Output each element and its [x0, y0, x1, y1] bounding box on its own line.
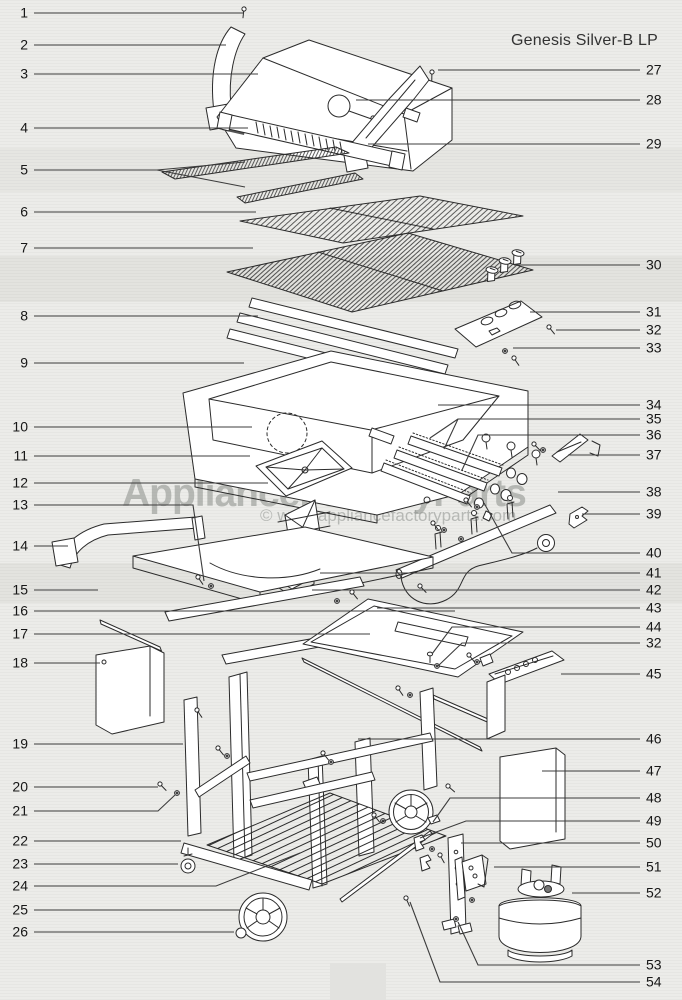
- leader-line-48: [433, 798, 640, 822]
- callout-number-51: 51: [646, 859, 662, 875]
- callout-layer: 1234567891011121314151617181920212223242…: [0, 0, 682, 1000]
- callout-number-16: 16: [12, 603, 28, 619]
- callout-number-46: 46: [646, 731, 662, 747]
- callout-number-25: 25: [12, 902, 28, 918]
- callout-number-37: 37: [646, 447, 662, 463]
- callout-number-38: 38: [646, 484, 662, 500]
- callout-number-42: 42: [646, 582, 662, 598]
- callout-number-33: 33: [646, 340, 662, 356]
- callout-number-52: 52: [646, 885, 662, 901]
- leader-line-13: [34, 505, 204, 581]
- callout-number-2: 2: [20, 37, 28, 53]
- callout-number-32: 32: [646, 322, 662, 338]
- callout-number-44: 44: [646, 619, 662, 635]
- callout-number-18: 18: [12, 655, 28, 671]
- callout-number-6: 6: [20, 204, 28, 220]
- leader-line-40: [484, 503, 640, 553]
- callout-number-12: 12: [12, 475, 28, 491]
- callout-number-45: 45: [646, 666, 662, 682]
- callout-number-11: 11: [13, 448, 28, 464]
- callout-number-19: 19: [12, 736, 28, 752]
- callout-number-32: 32: [646, 635, 662, 651]
- leader-line-5: [157, 162, 245, 170]
- callout-number-17: 17: [12, 626, 28, 642]
- leader-line-24: [34, 853, 300, 886]
- leader-line-54: [410, 902, 640, 982]
- leader-line-5: [157, 170, 245, 187]
- callout-number-1: 1: [20, 5, 28, 21]
- callout-number-4: 4: [20, 120, 28, 136]
- callout-number-3: 3: [20, 66, 28, 82]
- scan-artifact: [330, 963, 386, 1000]
- leader-line-32: [438, 643, 640, 666]
- callout-number-9: 9: [20, 355, 28, 371]
- parts-diagram-page: ApplianceFactoryParts © www.appliancefac…: [0, 0, 682, 1000]
- callout-number-29: 29: [646, 136, 662, 152]
- callout-number-10: 10: [12, 419, 28, 435]
- callout-number-35: 35: [646, 411, 662, 427]
- callout-number-40: 40: [646, 545, 662, 561]
- callout-number-43: 43: [646, 600, 662, 616]
- callout-number-13: 13: [12, 497, 28, 513]
- callout-number-24: 24: [12, 878, 28, 894]
- callout-number-53: 53: [646, 957, 662, 973]
- callout-number-54: 54: [646, 974, 662, 990]
- leader-line-49: [420, 821, 640, 838]
- callout-number-48: 48: [646, 790, 662, 806]
- callout-number-14: 14: [12, 538, 28, 554]
- leader-line-36: [462, 435, 640, 470]
- callout-number-21: 21: [12, 803, 28, 819]
- leader-line-44: [432, 627, 640, 654]
- callout-number-26: 26: [12, 924, 28, 940]
- page-title: Genesis Silver-B LP: [511, 32, 658, 50]
- callout-number-41: 41: [646, 565, 662, 581]
- callout-number-7: 7: [20, 240, 28, 256]
- leader-line-21: [34, 795, 175, 811]
- callout-number-8: 8: [20, 308, 28, 324]
- callout-number-22: 22: [12, 833, 28, 849]
- callout-number-50: 50: [646, 835, 662, 851]
- leader-line-53: [458, 922, 640, 965]
- callout-number-28: 28: [646, 92, 662, 108]
- callout-number-47: 47: [646, 763, 662, 779]
- callout-number-36: 36: [646, 427, 662, 443]
- callout-number-27: 27: [646, 62, 662, 78]
- callout-number-30: 30: [646, 257, 662, 273]
- callout-number-39: 39: [646, 506, 662, 522]
- callout-number-20: 20: [12, 779, 28, 795]
- callout-number-49: 49: [646, 813, 662, 829]
- callout-number-31: 31: [646, 304, 662, 320]
- callout-number-23: 23: [12, 856, 28, 872]
- callout-number-15: 15: [12, 582, 28, 598]
- callout-number-5: 5: [20, 162, 28, 178]
